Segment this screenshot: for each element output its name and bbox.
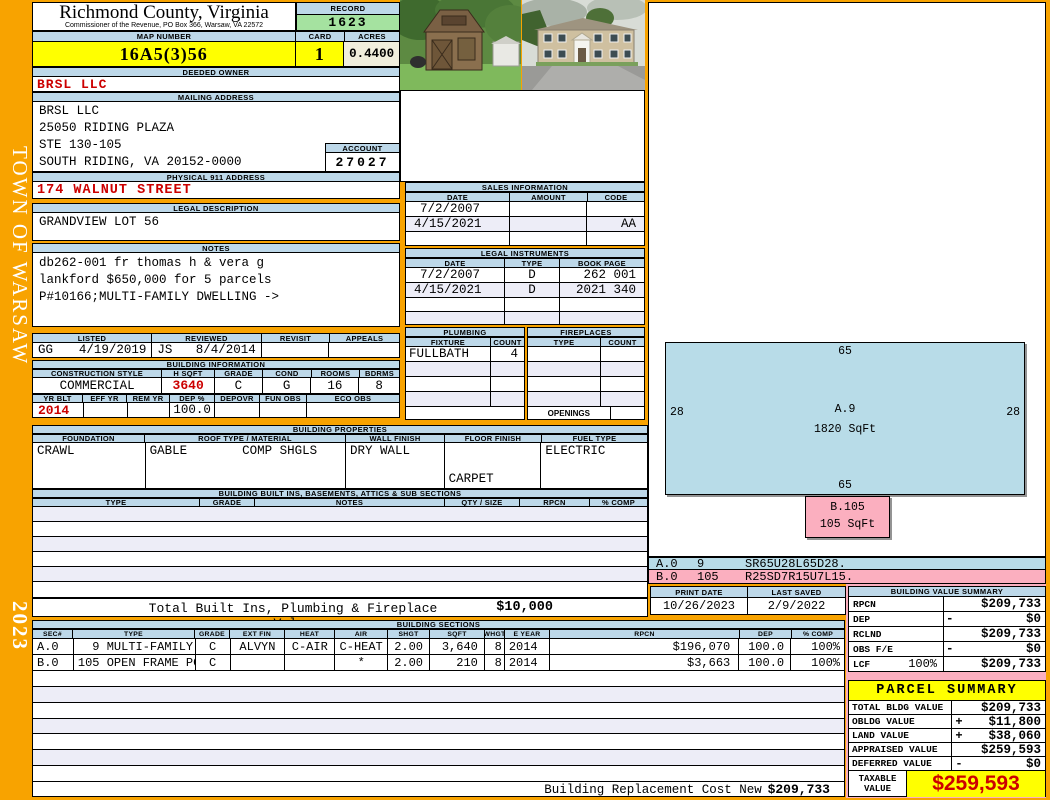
whgt-label: WHGT: [485, 629, 505, 639]
type-value: 9 MULTI-FAMILY: [74, 639, 196, 654]
builtin-notes-label: NOTES: [255, 498, 445, 507]
empty-row: [33, 552, 647, 567]
sqft-value: 3,640: [430, 639, 485, 654]
empty-row: [405, 312, 645, 325]
parcel-summary-label: PARCEL SUMMARY: [849, 681, 1045, 701]
replacement-cost-value: $209,733: [700, 782, 830, 797]
remyr-label: REM YR: [127, 394, 170, 403]
physical-address-value: 174 WALNUT STREET: [33, 182, 399, 198]
dep-label: DEP: [849, 612, 944, 626]
listed-by: GG: [38, 343, 53, 357]
empty-row: [405, 298, 645, 312]
empty-row: [527, 347, 645, 362]
sketch-code-sec: A.0: [649, 557, 697, 571]
summary-row: DEP - $0: [849, 612, 1045, 627]
building-section-row: B.0 105 OPEN FRAME PCH C * 2.00 210 8 20…: [32, 655, 845, 671]
whgt-value: 8: [485, 639, 505, 654]
instrument-date-label: DATE: [405, 258, 505, 268]
dep-pct-label: DEP %: [170, 394, 215, 403]
eyear-value: 2014: [505, 639, 550, 654]
dimension-label: 65: [666, 345, 1024, 358]
sketch-code-row: A.0 9 SR65U28L65D28.: [648, 557, 1046, 570]
wall-finish-label: WALL FINISH: [346, 434, 445, 443]
building-info-header2: YR BLT EFF YR REM YR DEP % DEPOVR FUN OB…: [32, 394, 400, 403]
bdrms-label: BDRMS: [360, 369, 400, 378]
instrument-type: D: [505, 283, 560, 297]
grade-value: C: [215, 378, 263, 393]
sec-value: B.0: [33, 655, 74, 670]
last-saved-value: 2/9/2022: [748, 598, 845, 614]
instrument-row: 7/2/2007 D 262 001: [405, 268, 645, 283]
air-label: AIR: [335, 629, 388, 639]
obldg-value: $11,800: [966, 715, 1045, 728]
deeded-owner-value: BRSL LLC: [33, 77, 399, 91]
sign: -: [944, 612, 956, 626]
fuel-type-value: ELECTRIC: [541, 443, 647, 488]
county-subtitle: Commissioner of the Revenue, PO Box 366,…: [33, 22, 295, 29]
print-date-label: PRINT DATE: [650, 586, 748, 598]
physical-address-label: PHYSICAL 911 ADDRESS: [32, 172, 400, 182]
card-value: 1: [296, 42, 345, 66]
sales-amount-label: AMOUNT: [510, 192, 588, 202]
sec-label: SEC#: [32, 629, 73, 639]
fireplaces-label: FIREPLACES: [527, 327, 645, 337]
comp-label: % COMP: [792, 629, 845, 639]
sign: +: [952, 729, 966, 742]
property-record-card: TOWN OF WARSAW 2023 Richmond County, Vir…: [0, 0, 1050, 800]
mailing-line: BRSL LLC: [39, 103, 399, 120]
built-ins-total-row: Total Built Ins, Plumbing & Fireplace Va…: [32, 598, 648, 617]
comp-value: 100%: [791, 655, 844, 670]
sign: -: [944, 642, 956, 656]
fixture-count-value: 4: [491, 347, 524, 361]
empty-row: [33, 687, 844, 703]
building-sections-empty-rows: [32, 671, 845, 782]
sketch-section-a: 65 65 28 28 A.9 1820 SqFt: [665, 342, 1025, 495]
empty-row: [33, 703, 844, 719]
empty-row: [527, 392, 645, 407]
photo-lower-panel: [400, 90, 645, 182]
built-ins-empty-rows: [32, 507, 648, 598]
heat-value: C-AIR: [285, 639, 335, 654]
rooms-label: ROOMS: [312, 369, 360, 378]
building-value-summary: BUILDING VALUE SUMMARY RPCN $209,733 DEP…: [848, 586, 1046, 672]
deeded-owner-row: BRSL LLC: [32, 77, 400, 92]
sketch-section-b: B.105 105 SqFt: [805, 496, 890, 538]
dep-value: 100.0: [739, 639, 791, 654]
reviewed-date: 8/4/2014: [196, 343, 256, 357]
physical-address-row: 174 WALNUT STREET: [32, 182, 400, 199]
empty-row: [33, 537, 647, 552]
record-label: RECORD: [296, 2, 400, 15]
rclnd-label: RCLND: [849, 627, 944, 641]
lcf-percent: 100%: [908, 657, 937, 671]
sales-date: 4/15/2021: [406, 217, 510, 231]
account-label: ACCOUNT: [325, 143, 400, 153]
review-value-row: GG 4/19/2019 JS 8/4/2014: [32, 343, 400, 358]
listed-date: 4/19/2019: [79, 343, 147, 357]
print-info-header: PRINT DATE LAST SAVED: [650, 586, 846, 598]
empty-row: [405, 407, 525, 420]
eyear-label: E YEAR: [505, 629, 550, 639]
comp-value: 100%: [791, 639, 844, 654]
reviewed-label: REVIEWED: [152, 333, 262, 343]
sketch-section-sqft: 1820 SqFt: [666, 423, 1024, 436]
roof-type-value: GABLE: [150, 444, 188, 458]
sign: +: [952, 715, 966, 728]
sketch-section-name: B.105: [806, 501, 889, 514]
fixture-count-label: COUNT: [491, 337, 525, 347]
hsqft-label: H SQFT: [162, 369, 215, 378]
rpcn-value: $3,663: [550, 655, 740, 670]
rpcn-value: $196,070: [550, 639, 740, 654]
map-number-value: 16A5(3)56: [33, 42, 296, 66]
revisit-label: REVISIT: [262, 333, 330, 343]
whgt-value: 8: [485, 655, 505, 670]
instrument-bookpage: 2021 340: [560, 283, 644, 297]
instrument-type-label: TYPE: [505, 258, 560, 268]
grade-value: C: [196, 639, 231, 654]
extfin-value: ALVYN: [231, 639, 286, 654]
floor-finish-value: CARPET: [449, 472, 541, 486]
sales-amount: [510, 202, 587, 216]
instrument-date: 7/2/2007: [406, 268, 505, 282]
funobs-label: FUN OBS: [260, 394, 307, 403]
map-header-row: MAP NUMBER CARD ACRES: [32, 31, 400, 42]
foundation-value: CRAWL: [33, 443, 146, 488]
sketch-code-area: 105: [697, 570, 745, 584]
sketch-code-sec: B.0: [649, 570, 697, 584]
construction-style-value: COMMERCIAL: [33, 378, 162, 393]
review-header-row: LISTED REVIEWED REVISIT APPEALS: [32, 333, 400, 343]
sec-value: A.0: [33, 639, 74, 654]
building-sections-label: BUILDING SECTIONS: [32, 620, 845, 629]
sign: [952, 743, 966, 756]
legal-description-label: LEGAL DESCRIPTION: [32, 203, 400, 213]
deferred-value: $0: [966, 757, 1045, 770]
empty-row: [33, 719, 844, 735]
sales-row: 4/15/2021 AA: [405, 217, 645, 232]
built-ins-total-value: $10,000: [453, 600, 553, 615]
dep-label: DEP: [740, 629, 792, 639]
taxable-label: VALUE: [864, 784, 891, 794]
map-number-label: MAP NUMBER: [32, 31, 296, 42]
total-bldg-value-label: TOTAL BLDG VALUE: [849, 701, 952, 714]
builtin-type-label: TYPE: [32, 498, 200, 507]
total-bldg-value: $209,733: [966, 701, 1045, 714]
wall-finish-value: DRY WALL: [346, 443, 445, 488]
instrument-row: 4/15/2021 D 2021 340: [405, 283, 645, 298]
account-box: ACCOUNT 27027: [325, 143, 400, 172]
mailing-address-label: MAILING ADDRESS: [32, 92, 400, 102]
building-info-values1: COMMERCIAL 3640 C G 16 8: [32, 378, 400, 394]
listed-label: LISTED: [32, 333, 152, 343]
notes-label: NOTES: [32, 243, 400, 253]
dep-value: $0: [956, 612, 1045, 626]
notes-line: P#10166;MULTI-FAMILY DWELLING ->: [39, 289, 399, 306]
building-info-values2: 2014 100.0: [32, 403, 400, 418]
shgt-value: 2.00: [388, 655, 430, 670]
instruments-header-row: DATE TYPE BOOK PAGE: [405, 258, 645, 268]
acres-label: ACRES: [345, 31, 400, 42]
depovr-label: DEPOVR: [215, 394, 260, 403]
appraised-value: $259,593: [966, 743, 1045, 756]
record-value: 1623: [296, 15, 400, 31]
obldg-value-label: OBLDG VALUE: [849, 715, 952, 728]
county-title: Richmond County, Virginia: [33, 3, 295, 22]
taxable-value: $259,593: [907, 771, 1045, 797]
builtin-comp-label: % COMP: [590, 498, 648, 507]
map-value-row: 16A5(3)56 1 0.4400: [32, 42, 400, 67]
sign: -: [952, 757, 966, 770]
notes-box: db262-001 fr thomas h & vera g lankford …: [32, 253, 400, 327]
grade-label: GRADE: [195, 629, 230, 639]
appeals-label: APPEALS: [330, 333, 400, 343]
cond-label: COND: [263, 369, 312, 378]
empty-row: [405, 377, 525, 392]
extfin-label: EXT FIN: [230, 629, 285, 639]
land-value-label: LAND VALUE: [849, 729, 952, 742]
funobs-value: [260, 403, 307, 417]
sqft-label: SQFT: [430, 629, 485, 639]
ecoobs-value: [307, 403, 399, 417]
rooms-value: 16: [311, 378, 359, 393]
dep-value: 100.0: [739, 655, 791, 670]
hsqft-value: 3640: [162, 378, 215, 393]
openings-value: [611, 407, 644, 419]
property-photo-building: [522, 0, 645, 90]
sketch-code-area: 9: [697, 557, 745, 571]
plumbing-row: FULLBATH 4: [405, 347, 525, 362]
deeded-owner-label: DEEDED OWNER: [32, 67, 400, 77]
summary-row: TOTAL BLDG VALUE $209,733: [849, 701, 1045, 715]
rclnd-value: $209,733: [956, 627, 1045, 641]
heat-label: HEAT: [285, 629, 335, 639]
building-properties-values: CRAWL GABLE COMP SHGLS DRY WALL CARPET V…: [32, 443, 648, 489]
summary-row: RCLND $209,733: [849, 627, 1045, 642]
dimension-label: 65: [666, 479, 1024, 492]
empty-row: [33, 507, 647, 522]
extfin-value: [231, 655, 286, 670]
yrblt-value: 2014: [33, 403, 84, 417]
heat-value: [285, 655, 335, 670]
taxable-value-row: TAXABLE VALUE $259,593: [849, 771, 1045, 797]
empty-row: [33, 582, 647, 596]
ecoobs-label: ECO OBS: [307, 394, 400, 403]
air-value: *: [335, 655, 388, 670]
construction-style-label: CONSTRUCTION STYLE: [32, 369, 162, 378]
grade-label: GRADE: [215, 369, 263, 378]
plumbing-label: PLUMBING: [405, 327, 525, 337]
empty-row: [33, 567, 647, 582]
empty-row: [527, 377, 645, 392]
replacement-cost-row: Building Replacement Cost New $209,733: [32, 782, 845, 797]
notes-line: db262-001 fr thomas h & vera g: [39, 255, 399, 272]
reviewed-by: JS: [157, 343, 172, 357]
empty-row: [33, 766, 844, 781]
property-photo-shed: [400, 0, 521, 90]
legal-description-value: GRANDVIEW LOT 56: [39, 215, 399, 229]
openings-row: OPENINGS: [527, 407, 645, 420]
sales-code-label: CODE: [588, 192, 645, 202]
built-ins-header: TYPE GRADE NOTES QTY / SIZE RPCN % COMP: [32, 498, 648, 507]
summary-row: LCF 100% $209,733: [849, 657, 1045, 671]
building-properties-header: FOUNDATION ROOF TYPE / MATERIAL WALL FIN…: [32, 434, 648, 443]
appraised-value-label: APPRAISED VALUE: [849, 743, 952, 756]
shgt-value: 2.00: [388, 639, 430, 654]
building-value-summary-label: BUILDING VALUE SUMMARY: [849, 587, 1045, 597]
yrblt-label: YR BLT: [32, 394, 83, 403]
lcf-label: LCF: [853, 659, 870, 670]
grade-value: C: [196, 655, 231, 670]
land-value: $38,060: [966, 729, 1045, 742]
remyr-value: [128, 403, 171, 417]
empty-row: [527, 362, 645, 377]
sketch-section-sqft: 105 SqFt: [806, 518, 889, 531]
last-saved-label: LAST SAVED: [748, 586, 846, 598]
floor-finish-label: FLOOR FINISH: [445, 434, 542, 443]
eyear-value: 2014: [505, 655, 550, 670]
sign: [952, 701, 966, 714]
legal-instruments-label: LEGAL INSTRUMENTS: [405, 248, 645, 258]
obs-fe-value: $0: [956, 642, 1045, 656]
account-value: 27027: [325, 153, 400, 172]
building-properties-label: BUILDING PROPERTIES: [32, 425, 648, 434]
building-information-label: BUILDING INFORMATION: [32, 360, 400, 369]
appeals-value: [329, 343, 399, 357]
instrument-bookpage-label: BOOK PAGE: [560, 258, 645, 268]
roof-material-value: COMP SHGLS: [242, 444, 317, 458]
taxable-label: TAXABLE: [859, 774, 897, 784]
sketch-code-row: B.0 105 R25SD7R15U7L15.: [648, 570, 1046, 584]
fireplaces-table: FIREPLACES TYPE COUNT OPENINGS: [527, 327, 645, 420]
cond-value: G: [263, 378, 312, 393]
effyr-value: [84, 403, 128, 417]
type-value: 105 OPEN FRAME PCH: [74, 655, 196, 670]
print-date-value: 10/26/2023: [651, 598, 748, 614]
openings-label: OPENINGS: [528, 407, 611, 419]
instrument-date: 4/15/2021: [406, 283, 505, 297]
rpcn-value: $209,733: [956, 597, 1045, 611]
bdrms-value: 8: [359, 378, 399, 393]
instrument-bookpage: 262 001: [560, 268, 644, 282]
legal-description-box: GRANDVIEW LOT 56: [32, 213, 400, 241]
notes-line: lankford $650,000 for 5 parcels: [39, 272, 399, 289]
depovr-value: [215, 403, 260, 417]
builtin-grade-label: GRADE: [200, 498, 255, 507]
revisit-value: [262, 343, 330, 357]
empty-row: [405, 362, 525, 377]
empty-row: [33, 750, 844, 766]
dep-pct-value: 100.0: [170, 403, 215, 417]
sales-date-label: DATE: [405, 192, 510, 202]
fuel-type-label: FUEL TYPE: [542, 434, 648, 443]
instrument-type: D: [505, 268, 560, 282]
year-vertical-label: 2023: [2, 588, 32, 664]
town-of-warsaw-vertical-label: TOWN OF WARSAW: [2, 128, 32, 384]
sales-header-row: DATE AMOUNT CODE: [405, 192, 645, 202]
empty-row: [33, 734, 844, 750]
summary-row: OBS F/E - $0: [849, 642, 1045, 657]
sketch-code-string: R25SD7R15U7L15.: [745, 570, 853, 584]
mailing-line: 25050 RIDING PLAZA: [39, 120, 399, 137]
built-ins-label: BUILDING BUILT INS, BASEMENTS, ATTICS & …: [32, 489, 648, 498]
print-info-values: 10/26/2023 2/9/2022: [650, 598, 846, 615]
summary-row: APPRAISED VALUE $259,593: [849, 743, 1045, 757]
sketch-code-string: SR65U28L65D28.: [745, 557, 846, 571]
sales-code: AA: [587, 217, 644, 231]
fireplace-type-label: TYPE: [527, 337, 601, 347]
card-label: CARD: [296, 31, 345, 42]
builtin-rpcn-label: RPCN: [520, 498, 590, 507]
sales-code: [587, 202, 644, 216]
builtin-qty-label: QTY / SIZE: [445, 498, 520, 507]
empty-row: [405, 232, 645, 246]
summary-row: LAND VALUE + $38,060: [849, 729, 1045, 743]
fixture-value: FULLBATH: [406, 347, 491, 361]
parcel-summary: PARCEL SUMMARY TOTAL BLDG VALUE $209,733…: [848, 680, 1046, 797]
summary-row: OBLDG VALUE + $11,800: [849, 715, 1045, 729]
fireplace-count-label: COUNT: [601, 337, 645, 347]
sqft-value: 210: [430, 655, 485, 670]
building-section-row: A.0 9 MULTI-FAMILY C ALVYN C-AIR C-HEAT …: [32, 639, 845, 655]
plumbing-table: PLUMBING FIXTURE COUNT FULLBATH 4: [405, 327, 525, 420]
roof-label: ROOF TYPE / MATERIAL: [145, 434, 346, 443]
building-sections-header: SEC# TYPE GRADE EXT FIN HEAT AIR SHGT SQ…: [32, 629, 845, 639]
summary-row: DEFERRED VALUE - $0: [849, 757, 1045, 771]
effyr-label: EFF YR: [83, 394, 127, 403]
shgt-label: SHGT: [388, 629, 430, 639]
summary-row: RPCN $209,733: [849, 597, 1045, 612]
county-header-box: Richmond County, Virginia Commissioner o…: [32, 2, 296, 31]
type-label: TYPE: [73, 629, 195, 639]
empty-row: [33, 671, 844, 687]
sales-amount: [510, 217, 587, 231]
empty-row: [405, 392, 525, 407]
building-info-header1: CONSTRUCTION STYLE H SQFT GRADE COND ROO…: [32, 369, 400, 378]
acres-value: 0.4400: [344, 42, 399, 66]
sales-information-label: SALES INFORMATION: [405, 182, 645, 192]
rpcn-label: RPCN: [550, 629, 740, 639]
record-box: RECORD 1623: [296, 2, 400, 31]
lcf-value: $209,733: [956, 657, 1045, 671]
deferred-value-label: DEFERRED VALUE: [849, 757, 952, 770]
sketch-section-name: A.9: [666, 403, 1024, 416]
sales-date: 7/2/2007: [406, 202, 510, 216]
fixture-label: FIXTURE: [405, 337, 491, 347]
sales-row: 7/2/2007: [405, 202, 645, 217]
air-value: C-HEAT: [335, 639, 388, 654]
foundation-label: FOUNDATION: [32, 434, 145, 443]
empty-row: [33, 522, 647, 537]
rpcn-label: RPCN: [849, 597, 944, 611]
obs-fe-label: OBS F/E: [849, 642, 944, 656]
